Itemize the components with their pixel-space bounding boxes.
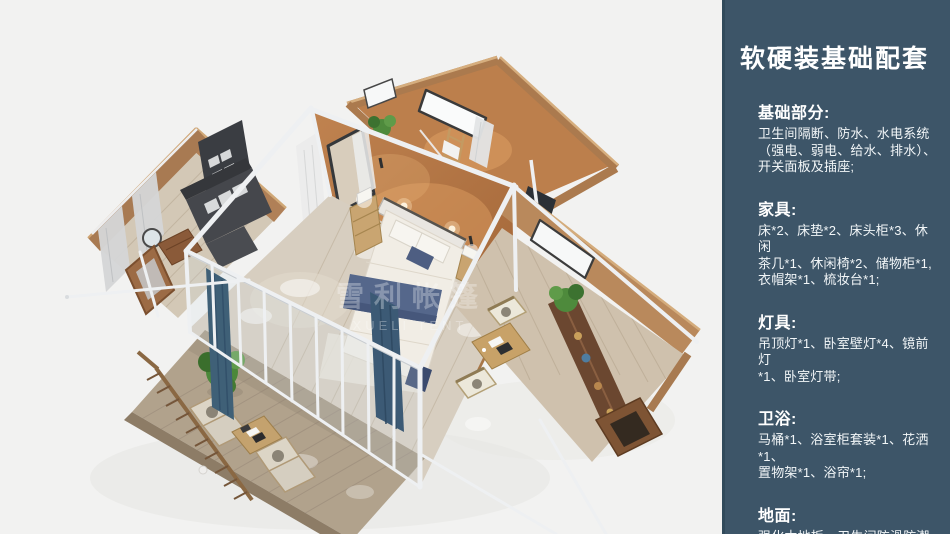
watermark-cn: 雪利帐篷 bbox=[336, 280, 488, 312]
slide: 雪利帐篷 XUELI TENT 软硬装基础配套 基础部分: 卫生间隔断、防水、水… bbox=[0, 0, 950, 534]
section-basics-body: 卫生间隔断、防水、水电系统 （强电、弱电、给水、排水）、 开关面板及插座; bbox=[758, 126, 940, 176]
section-flooring: 地面: 强化木地板、卫生间防滑防潮石 塑板; bbox=[758, 502, 940, 534]
section-furniture: 家具: 床*2、床垫*2、床头柜*3、休闲 茶几*1、休闲椅*2、储物柜*1, … bbox=[758, 196, 940, 289]
section-lighting-body: 吊顶灯*1、卧室壁灯*4、镜前灯 *1、卧室灯带; bbox=[758, 336, 940, 386]
spec-sections: 基础部分: 卫生间隔断、防水、水电系统 （强电、弱电、给水、排水）、 开关面板及… bbox=[758, 99, 940, 534]
watermark-en: XUELI TENT bbox=[353, 318, 468, 333]
section-bathroom-heading: 卫浴: bbox=[758, 405, 940, 429]
watermark: 雪利帐篷 XUELI TENT bbox=[336, 280, 488, 333]
section-bathroom-body: 马桶*1、浴室柜套装*1、花洒*1、 置物架*1、浴帘*1; bbox=[758, 432, 940, 482]
section-flooring-body: 强化木地板、卫生间防滑防潮石 塑板; bbox=[758, 529, 940, 534]
floorplan-render: 雪利帐篷 XUELI TENT bbox=[0, 0, 722, 534]
section-lighting: 灯具: 吊顶灯*1、卧室壁灯*4、镜前灯 *1、卧室灯带; bbox=[758, 309, 940, 386]
floorplan-svg: 雪利帐篷 XUELI TENT bbox=[0, 0, 722, 534]
section-flooring-heading: 地面: bbox=[758, 502, 940, 526]
section-lighting-heading: 灯具: bbox=[758, 309, 940, 333]
spec-panel: 软硬装基础配套 基础部分: 卫生间隔断、防水、水电系统 （强电、弱电、给水、排水… bbox=[722, 0, 950, 534]
section-furniture-heading: 家具: bbox=[758, 196, 940, 220]
panel-title: 软硬装基础配套 bbox=[740, 44, 940, 74]
deck-ornament bbox=[199, 466, 207, 474]
section-bathroom: 卫浴: 马桶*1、浴室柜套装*1、花洒*1、 置物架*1、浴帘*1; bbox=[758, 405, 940, 482]
section-basics-heading: 基础部分: bbox=[758, 99, 940, 123]
section-furniture-body: 床*2、床垫*2、床头柜*3、休闲 茶几*1、休闲椅*2、储物柜*1, 衣帽架*… bbox=[758, 223, 940, 289]
section-basics: 基础部分: 卫生间隔断、防水、水电系统 （强电、弱电、给水、排水）、 开关面板及… bbox=[758, 99, 940, 176]
